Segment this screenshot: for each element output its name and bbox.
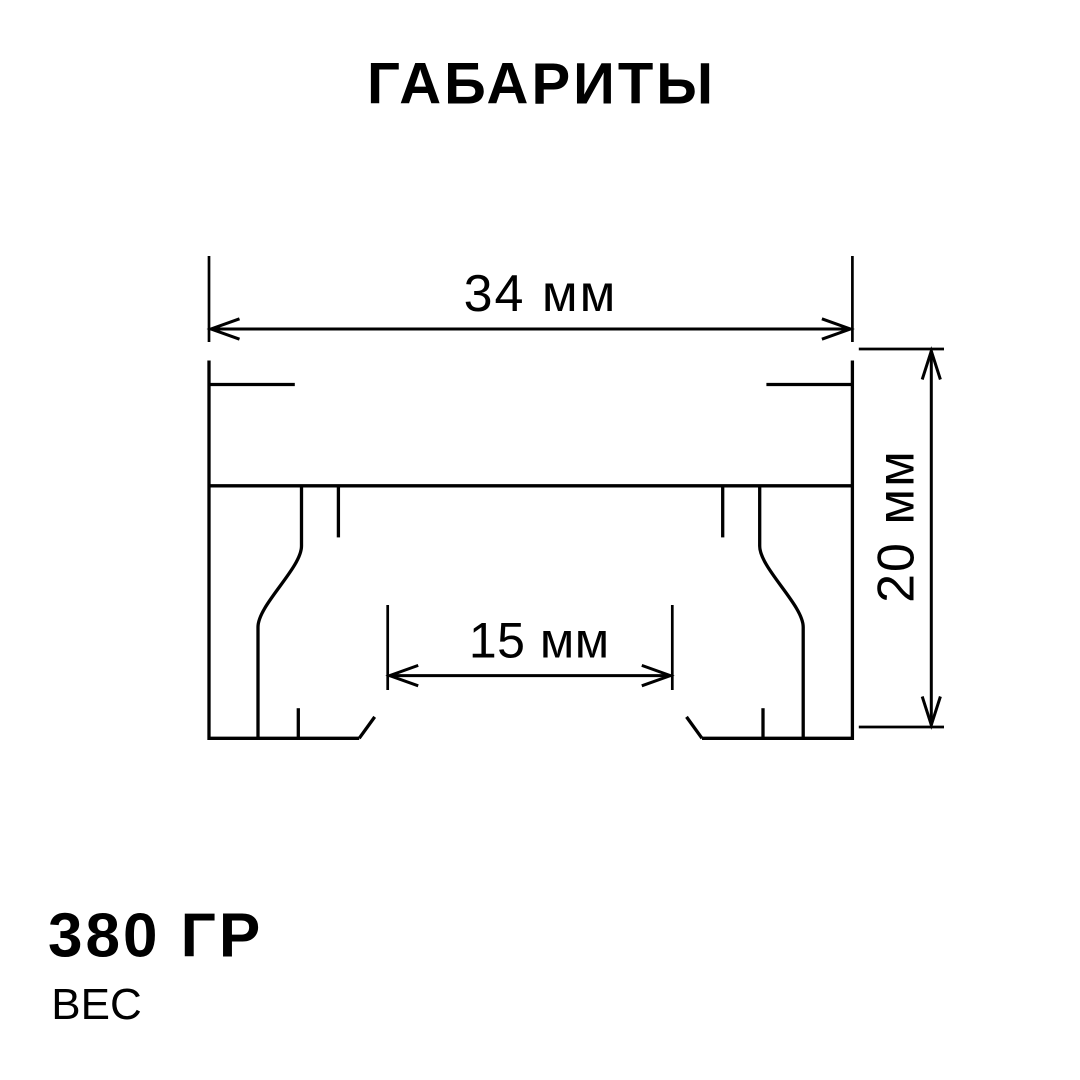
svg-text:380 ГР: 380 ГР: [48, 902, 263, 971]
svg-text:34 мм: 34 мм: [464, 265, 618, 323]
svg-text:20 мм: 20 мм: [868, 449, 926, 603]
svg-text:ГАБАРИТЫ: ГАБАРИТЫ: [367, 51, 716, 116]
svg-text:15 мм: 15 мм: [469, 613, 610, 669]
svg-text:ВЕС: ВЕС: [51, 980, 141, 1029]
